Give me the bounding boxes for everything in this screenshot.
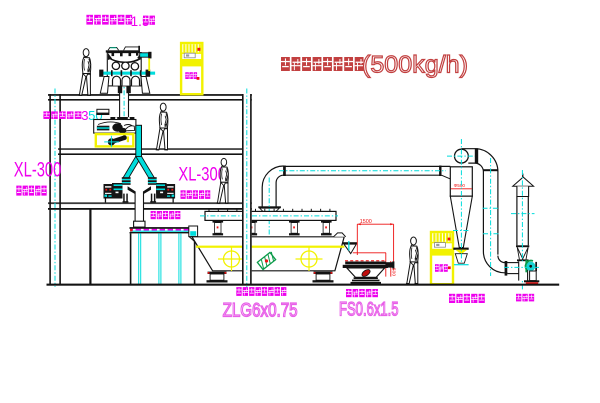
svg-text:500: 500 xyxy=(390,268,396,276)
svg-text:XL-300: XL-300 xyxy=(178,165,226,186)
svg-text:FS0.6x1.5: FS0.6x1.5 xyxy=(339,299,399,321)
svg-text:(500kg/h): (500kg/h) xyxy=(362,52,468,79)
svg-text:XL-300: XL-300 xyxy=(14,159,62,182)
svg-text:ZLG6x0.75: ZLG6x0.75 xyxy=(223,301,298,322)
svg-text:Φ500: Φ500 xyxy=(454,183,466,188)
